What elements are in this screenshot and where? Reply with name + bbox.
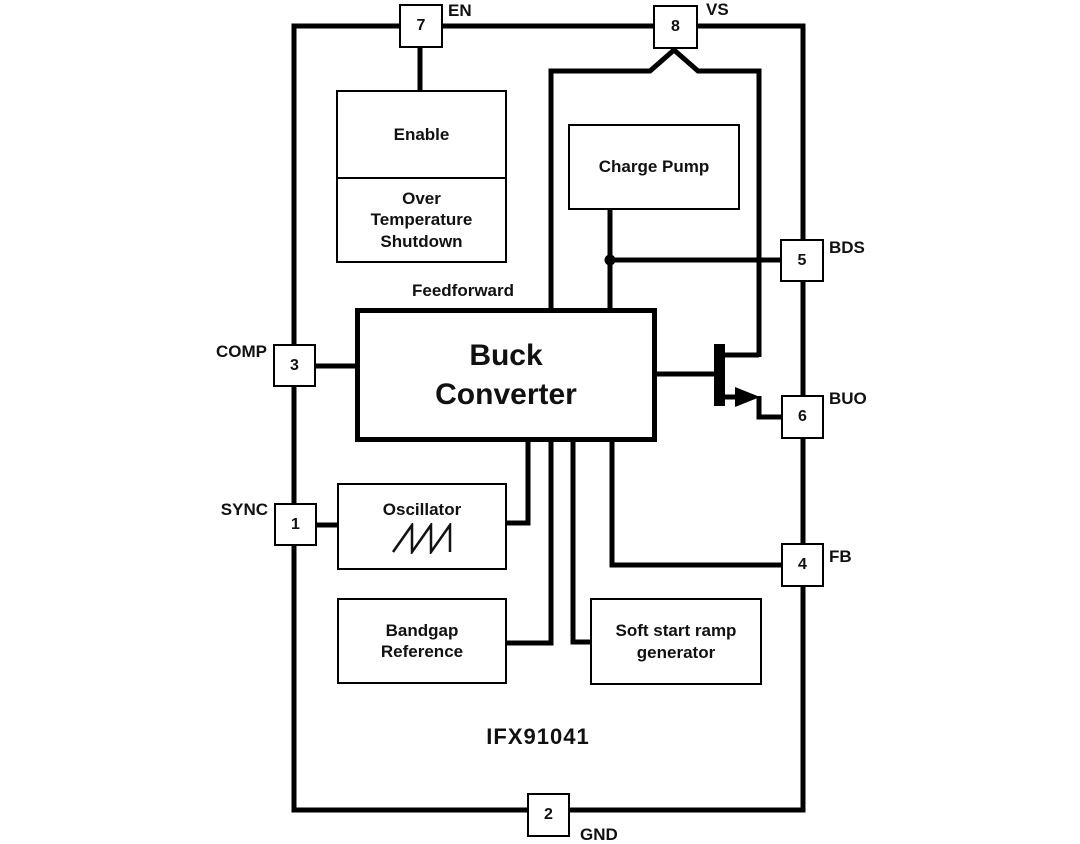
wire-buck-fb — [612, 436, 783, 565]
feedforward-label: Feedforward — [412, 281, 514, 301]
pin-6-number: 6 — [798, 408, 807, 426]
pin-5-bds: 5 — [780, 239, 824, 282]
bandgap-reference-block: Bandgap Reference — [337, 598, 507, 684]
wire-emitter-buo — [759, 396, 783, 417]
pin-label-comp: COMP — [205, 342, 267, 362]
pin-6-buo: 6 — [781, 395, 824, 439]
oscillator-block: Oscillator — [337, 483, 507, 570]
pin-2-number: 2 — [544, 806, 553, 824]
over-temperature-label: Over Temperature Shutdown — [352, 188, 492, 252]
wire-oscillator-buck — [505, 436, 528, 523]
pin-label-fb: FB — [829, 547, 852, 567]
soft-start-label: Soft start ramp generator — [597, 620, 755, 663]
enable-section: Enable — [338, 92, 505, 179]
pin-label-sync: SYNC — [210, 500, 268, 520]
oscillator-label: Oscillator — [383, 499, 461, 520]
pin-5-number: 5 — [798, 252, 807, 270]
pin-label-en: EN — [448, 1, 472, 21]
enable-label: Enable — [394, 124, 450, 145]
junction-dot — [605, 255, 616, 266]
transistor-base-bar — [714, 344, 725, 406]
buck-converter-block: Buck Converter — [355, 308, 657, 442]
pin-4-number: 4 — [798, 556, 807, 574]
pin-label-vs: VS — [706, 0, 729, 20]
pin-8-vs: 8 — [653, 5, 698, 49]
sawtooth-waveform-icon — [391, 523, 453, 554]
pin-label-bds: BDS — [829, 238, 865, 258]
pin-8-number: 8 — [671, 18, 680, 36]
pin-2-gnd: 2 — [527, 793, 570, 837]
charge-pump-block: Charge Pump — [568, 124, 740, 210]
buck-converter-label: Buck Converter — [406, 336, 606, 414]
pin-7-en: 7 — [399, 4, 443, 48]
soft-start-block: Soft start ramp generator — [590, 598, 762, 685]
pin-3-number: 3 — [290, 357, 299, 375]
transistor-emitter-arrow-icon — [735, 387, 760, 407]
block-diagram: Enable Over Temperature Shutdown Charge … — [0, 0, 1080, 844]
over-temperature-section: Over Temperature Shutdown — [338, 179, 505, 261]
bandgap-reference-label: Bandgap Reference — [363, 620, 481, 663]
pin-label-gnd: GND — [580, 825, 618, 844]
pin-label-buo: BUO — [829, 389, 867, 409]
pin-4-fb: 4 — [781, 543, 824, 587]
pin-7-number: 7 — [417, 17, 426, 35]
pin-1-sync: 1 — [274, 503, 317, 546]
pin-3-comp: 3 — [273, 344, 316, 387]
enable-ots-block: Enable Over Temperature Shutdown — [336, 90, 507, 263]
pin-1-number: 1 — [291, 516, 300, 534]
part-number: IFX91041 — [428, 724, 648, 750]
charge-pump-label: Charge Pump — [599, 156, 710, 177]
